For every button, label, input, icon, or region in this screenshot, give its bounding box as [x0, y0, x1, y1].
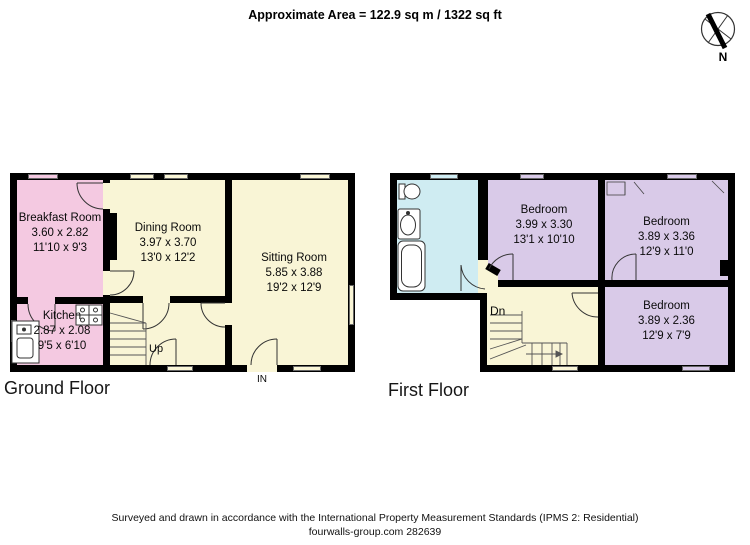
bedroom2-closet-lines	[607, 181, 724, 195]
bathtub-inner	[402, 245, 422, 287]
room-name: Bedroom	[490, 203, 598, 218]
bedroom3-label: Bedroom 3.89 x 2.36 12'9 x 7'9	[605, 299, 728, 344]
door-arc	[201, 303, 225, 327]
room-size-imperial: 9'5 x 6'10	[22, 339, 102, 354]
footer: Surveyed and drawn in accordance with th…	[0, 511, 750, 539]
room-size-imperial: 12'9 x 11'0	[605, 245, 728, 260]
entrance-door-arc	[251, 339, 277, 365]
footer-line1: Surveyed and drawn in accordance with th…	[0, 511, 750, 525]
bedroom1-label: Bedroom 3.99 x 3.30 13'1 x 10'10	[490, 203, 598, 248]
room-size-metric: 3.89 x 3.36	[605, 230, 728, 245]
staircase-down	[490, 311, 567, 365]
compass-north-label: N	[719, 50, 728, 64]
room-size-imperial: 12'9 x 7'9	[605, 329, 728, 344]
compass-needle	[708, 14, 725, 48]
room-size-imperial: 11'10 x 9'3	[17, 241, 103, 256]
kitchen-label: Kitchen 2.87 x 2.08 9'5 x 6'10	[22, 309, 102, 354]
dining-room-label: Dining Room 3.97 x 3.70 13'0 x 12'2	[113, 221, 223, 266]
room-name: Dining Room	[113, 221, 223, 236]
room-size-imperial: 13'0 x 12'2	[113, 251, 223, 266]
footer-line2: fourwalls-group.com 282639	[0, 525, 750, 539]
door-arc	[110, 271, 134, 295]
stairs-arrow	[556, 351, 562, 357]
door-arc	[572, 293, 598, 317]
room-size-metric: 2.87 x 2.08	[22, 324, 102, 339]
ground-floor-title: Ground Floor	[4, 378, 110, 399]
room-size-metric: 5.85 x 3.88	[238, 266, 350, 281]
door-arc	[461, 265, 485, 289]
stairs-up-label: Up	[149, 343, 163, 355]
breakfast-room-label: Breakfast Room 3.60 x 2.82 11'10 x 9'3	[17, 211, 103, 256]
room-size-metric: 3.60 x 2.82	[17, 226, 103, 241]
room-name: Sitting Room	[238, 251, 350, 266]
room-size-imperial: 13'1 x 10'10	[490, 233, 598, 248]
diagonal-wall	[487, 266, 499, 273]
approximate-area-text: Approximate Area = 122.9 sq m / 1322 sq …	[0, 8, 750, 22]
sitting-room-label: Sitting Room 5.85 x 3.88 19'2 x 12'9	[238, 251, 350, 296]
entrance-in-label: IN	[247, 374, 277, 385]
room-size-imperial: 19'2 x 12'9	[238, 281, 350, 296]
staircase-up	[110, 313, 146, 365]
basin-faucet	[407, 212, 410, 215]
toilet-bowl	[404, 184, 420, 199]
bathroom-fixtures	[398, 184, 425, 291]
compass: N	[692, 2, 746, 68]
room-name: Breakfast Room	[17, 211, 103, 226]
room-name: Kitchen	[22, 309, 102, 324]
first-floor-plan: Bedroom 3.99 x 3.30 13'1 x 10'10 Bedroom…	[390, 173, 735, 372]
room-name: Bedroom	[605, 299, 728, 314]
door-arc	[143, 303, 169, 329]
stairs-down-label: Dn	[490, 304, 505, 318]
ground-floor-plan: Breakfast Room 3.60 x 2.82 11'10 x 9'3 D…	[10, 173, 355, 372]
room-size-metric: 3.89 x 2.36	[605, 314, 728, 329]
room-name: Bedroom	[605, 215, 728, 230]
first-floor-title: First Floor	[388, 380, 469, 401]
room-size-metric: 3.97 x 3.70	[113, 236, 223, 251]
room-size-metric: 3.99 x 3.30	[490, 218, 598, 233]
bedroom2-label: Bedroom 3.89 x 3.36 12'9 x 11'0	[605, 215, 728, 260]
basin	[401, 215, 416, 235]
door-arc	[77, 183, 103, 209]
